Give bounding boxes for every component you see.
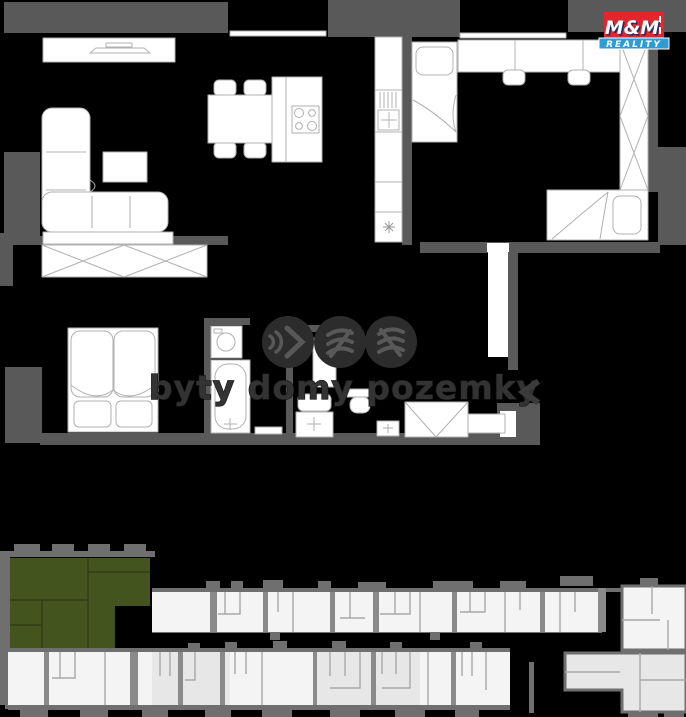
- logo-mm-text: M&M: [605, 17, 659, 39]
- desk-chair: [568, 70, 590, 85]
- sound-waves-icon: [262, 316, 314, 368]
- single-bed: [547, 190, 648, 240]
- single-bed: [412, 42, 457, 142]
- watermark-text: byty domy pozemky: [149, 368, 539, 407]
- desk-chair: [503, 70, 525, 85]
- building-upper-strip: [152, 588, 606, 632]
- highlighted-apartment: [10, 558, 150, 648]
- dining-chair: [244, 80, 266, 96]
- striped-flag-icon: [365, 316, 417, 368]
- hand-basin: [377, 421, 399, 436]
- double-bed: [68, 328, 158, 432]
- floorplan-image: byty domy pozemky M&M M&M REALITY: [0, 0, 686, 717]
- striped-book-icon: [314, 316, 366, 368]
- kitchen-counter: [375, 37, 402, 242]
- cooktop: [292, 106, 319, 133]
- coffee-table: [103, 152, 147, 182]
- dining-chair: [214, 142, 236, 158]
- tall-wardrobe: [620, 42, 648, 190]
- tv-stand: [43, 38, 175, 62]
- building-lower-strip: [8, 652, 510, 705]
- door-leaf: [488, 245, 508, 357]
- dining-chair: [244, 142, 266, 158]
- dining-chair: [214, 80, 236, 96]
- mm-reality-logo: M&M M&M REALITY: [599, 12, 669, 50]
- door-threshold: [255, 427, 282, 434]
- kitchen-island: [272, 77, 322, 162]
- hallway-closet: [405, 402, 468, 437]
- dining-table: [208, 95, 277, 143]
- logo-reality-text: REALITY: [606, 40, 662, 50]
- shoe-bench: [468, 414, 505, 433]
- washing-machine: [211, 326, 242, 358]
